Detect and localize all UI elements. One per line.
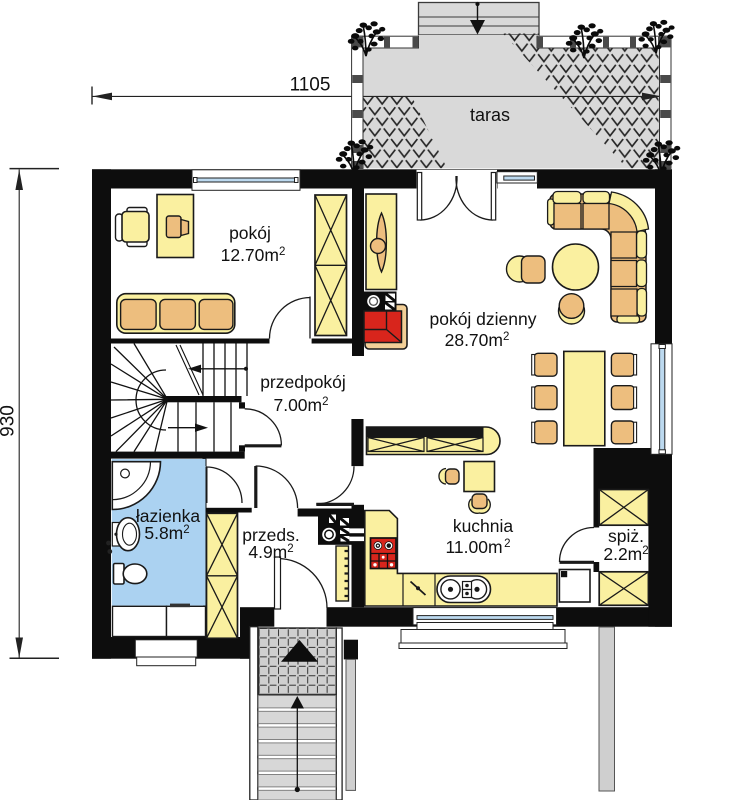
svg-text:11.00m2: 11.00m2 [446, 537, 511, 557]
svg-text:7.00m2: 7.00m2 [273, 395, 328, 415]
svg-text:pokój: pokój [229, 223, 271, 243]
svg-text:przedpokój: przedpokój [260, 372, 346, 392]
svg-text:spiż.: spiż. [608, 526, 644, 546]
svg-text:pokój dzienny: pokój dzienny [429, 309, 536, 329]
svg-text:taras: taras [470, 105, 510, 125]
svg-text:4.9m2: 4.9m2 [248, 542, 293, 562]
svg-text:2.2m2: 2.2m2 [603, 544, 648, 564]
svg-text:5.8m2: 5.8m2 [144, 523, 189, 543]
svg-text:12.70m2: 12.70m2 [221, 245, 286, 265]
svg-text:kuchnia: kuchnia [453, 516, 514, 536]
svg-text:1105: 1105 [290, 75, 331, 96]
svg-text:930: 930 [0, 405, 19, 437]
svg-text:28.70m2: 28.70m2 [445, 330, 510, 350]
